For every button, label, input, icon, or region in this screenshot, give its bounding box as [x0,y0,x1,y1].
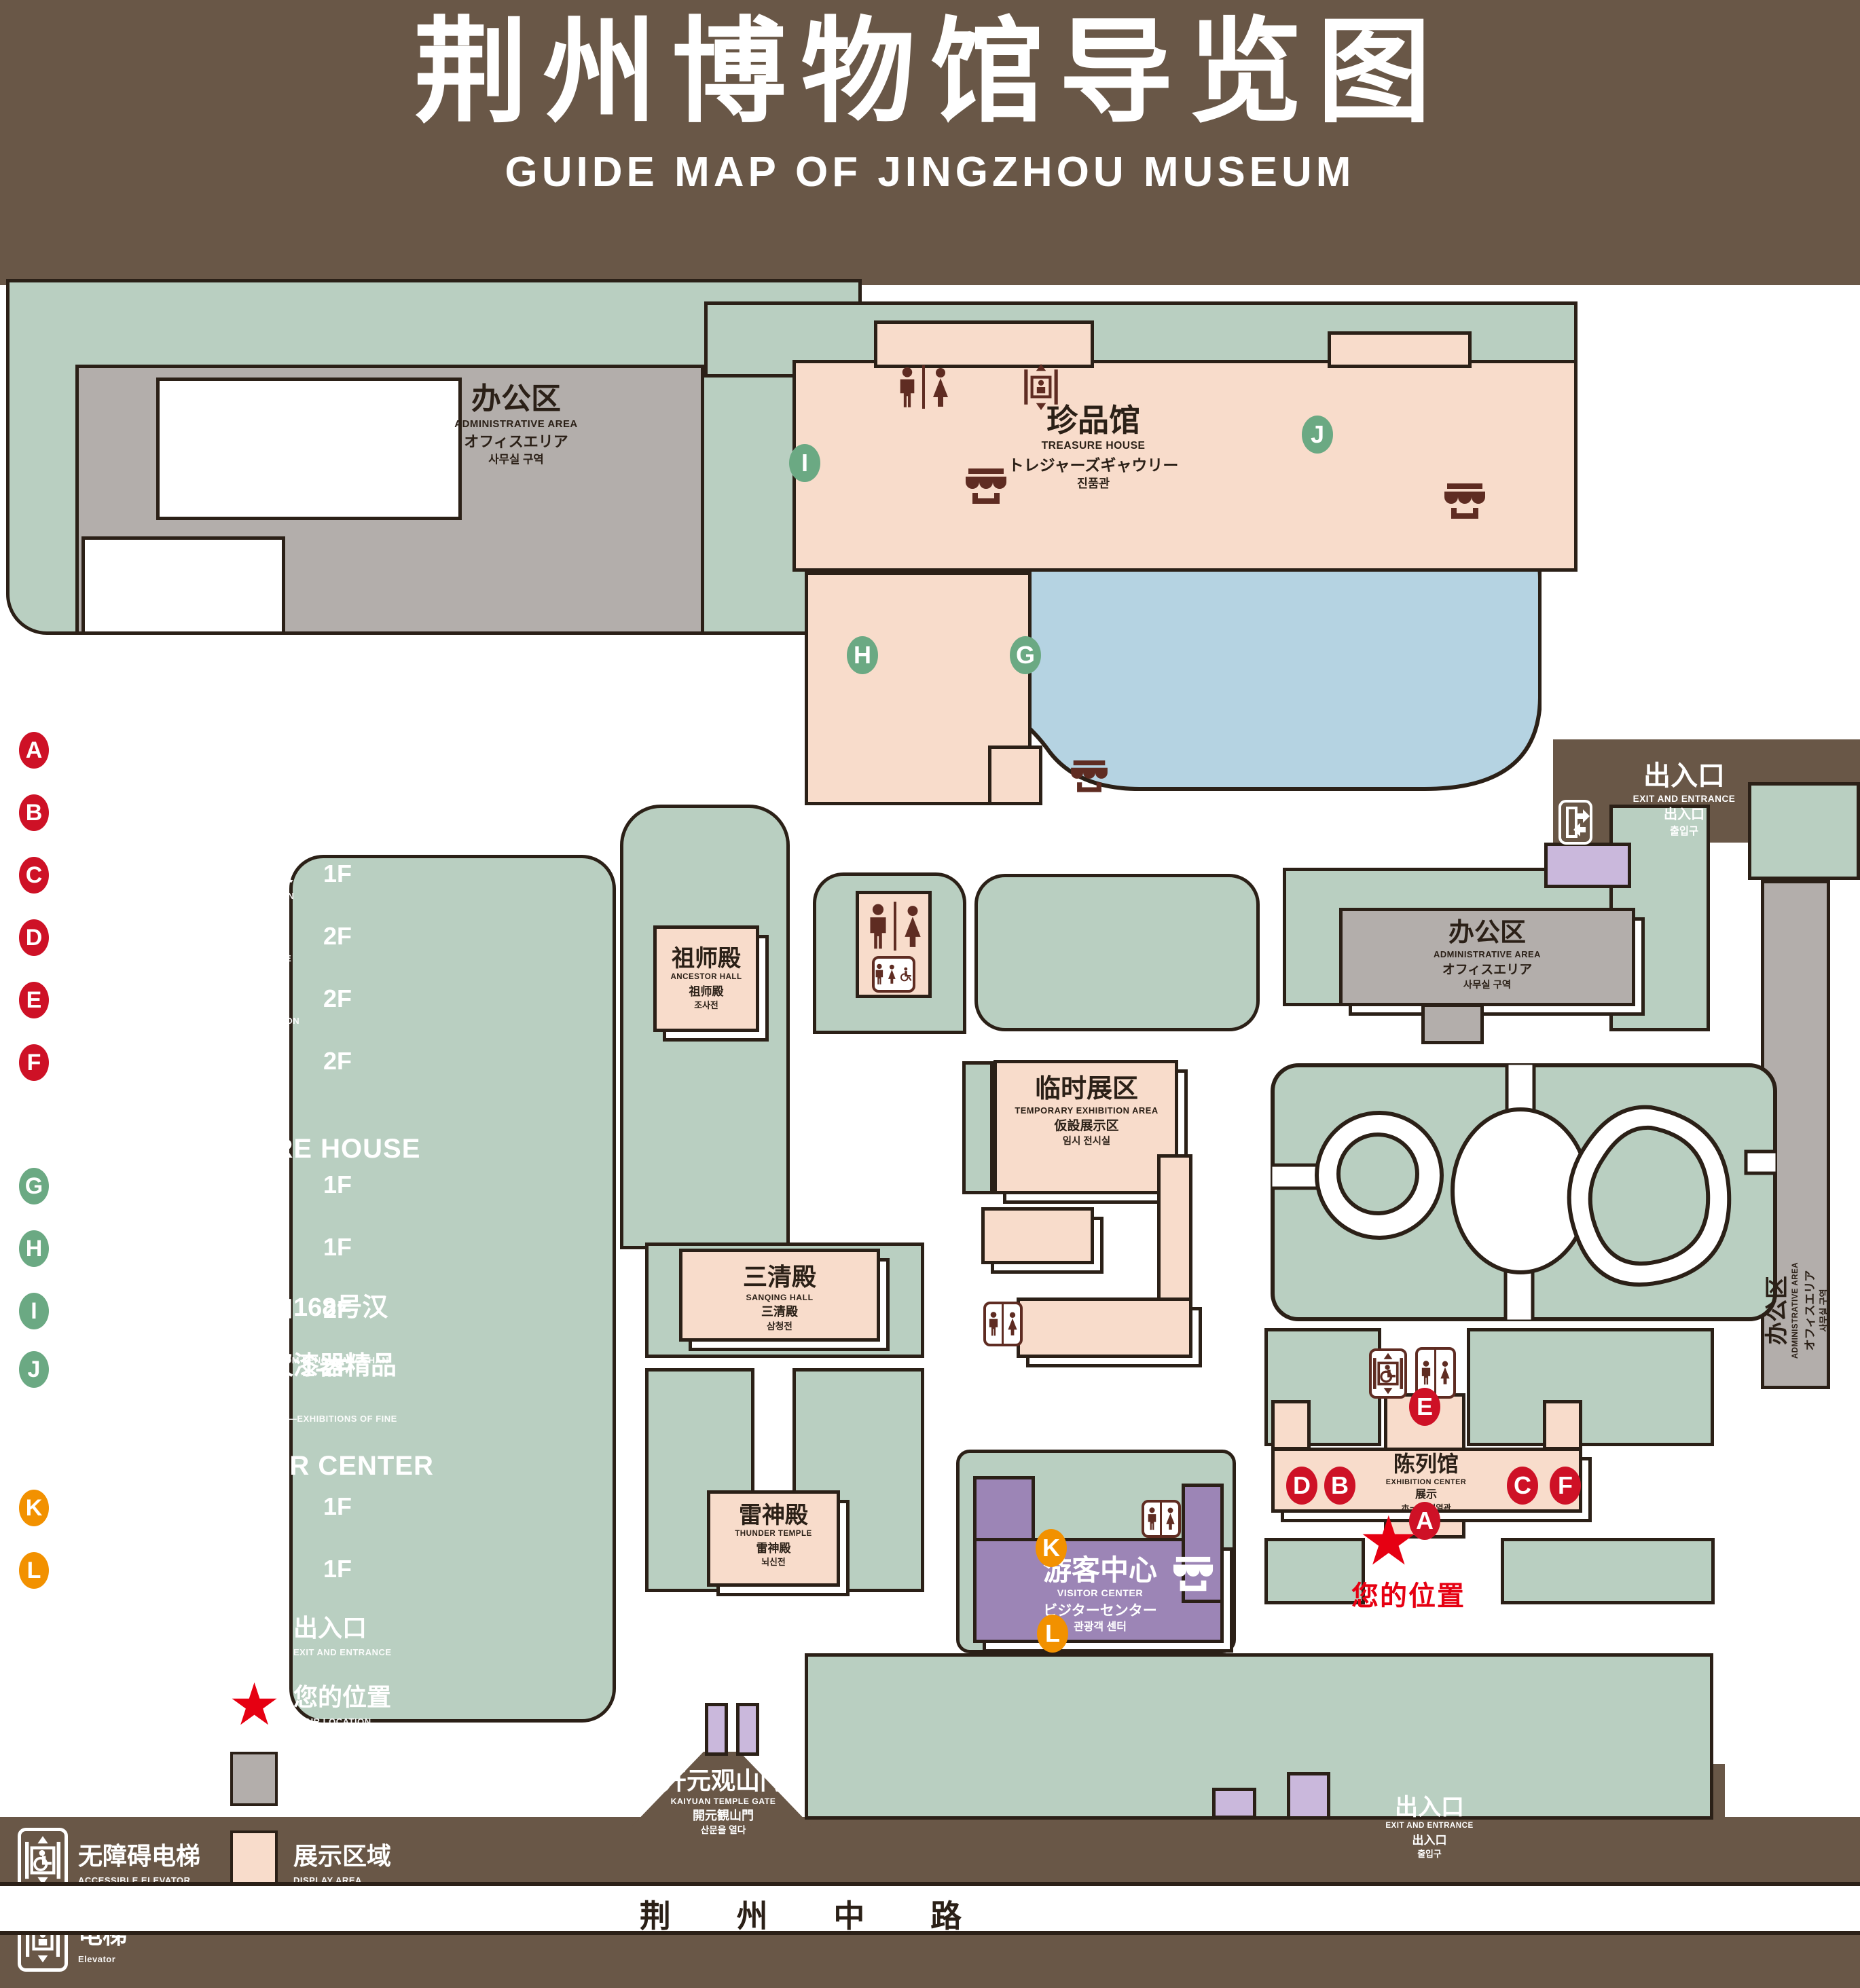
legend-accessible-label: 无障碍电梯 ACCESSIBLE ELEVATOR [78,1843,200,1885]
thunder-ja: 雷神殿 [712,1542,835,1556]
road-label: 荆 州 中 路 [407,1892,1222,1936]
legend-item-d: D 荆州出土瓷器展 JINGZHOU UNEARTHED PORCELAIN E… [19,921,399,963]
badge-e: E [19,982,49,1018]
legend-item-g: G 放映厅 PROJECTION HALL 1F [19,1169,399,1212]
admin-side-ja: オフィスエリア [1804,1175,1817,1446]
elevator-icon [1022,364,1060,410]
exit-top-en: EXIT AND ENTRANCE [1582,794,1786,805]
exit-top-ja: 出入口 [1582,807,1786,824]
exit-bottom-pad-right [1287,1772,1330,1820]
map-badge-g: G [1010,636,1041,674]
treasure-lower-tab [988,745,1042,805]
gate-pillar-left [705,1703,728,1756]
legend-sec3-zh: 游客中心 [19,1429,177,1486]
building-label-temporary: 临时展区 TEMPORARY EXHIBITION AREA 仮設展示区 임시 … [995,1074,1178,1147]
location-star-icon: ★ [1358,1507,1419,1575]
store-icon [1443,483,1487,523]
gate-en: KAIYUAN TEMPLE GATE [615,1797,832,1806]
store-icon [1070,760,1109,796]
page-title: 荆州博物馆导览图 [0,12,1860,132]
item-g-floor: 1F [323,1171,352,1199]
exit-bottom-pad-left [1212,1788,1256,1819]
building-label-admin-right: 办公区 ADMINISTRATIVE AREA オフィスエリア 사무실 구역 [1355,918,1620,991]
badge-i: I [19,1293,49,1329]
family-restroom-icon [18,1749,68,1811]
thunder-zh: 雷神殿 [712,1502,835,1529]
map-badge-d: D [1286,1467,1317,1505]
family-zh: 家庭卫生间 [78,1764,200,1791]
map-badge-f: F [1550,1467,1581,1505]
map-badge-h: H [847,636,878,674]
legend-sec1-en: EXHIBITION CENTER [158,697,443,728]
admin-right-tab [1421,1004,1484,1044]
admin-top-zh: 办公区 [380,382,652,417]
item-b-floor: 1F [323,797,352,826]
treasure-tab-right [1328,331,1472,368]
restroom-icon [898,365,951,409]
map-badge-k: K [1036,1529,1067,1567]
exit-bottom-ja: 出入口 [1328,1834,1531,1847]
park-bottom-middle [805,1653,1713,1820]
store-icon [19,1610,65,1653]
display-area-swatch [230,1830,278,1885]
accessible-zh: 无障碍电梯 [78,1843,200,1870]
legend-family-label: 家庭卫生间 FAMILY RESTROOMS [78,1764,200,1807]
building-label-thunder: 雷神殿 THUNDER TEMPLE 雷神殿 뇌신전 [712,1502,835,1567]
legend-item-e: E 荆州出土简牍展 JINGZHOU EXCAVATED BAMBOO SLIP… [19,983,399,1026]
legend-item-j: J 丹漆神韵——楚秦汉漆器精品展 ROMANTIC CHARM OF THE C… [19,1352,399,1434]
item-g-en: PROJECTION HALL [61,1202,399,1212]
exit-top-label: 出入口 EXIT AND ENTRANCE 出入口 출입구 [1582,760,1786,838]
office-zh: 办公区域 [293,1764,391,1791]
ancestor-ko: 조사전 [645,1000,767,1010]
badge-j: J [19,1351,49,1388]
exit-bottom-en: EXIT AND ENTRANCE [1328,1822,1531,1831]
exit-bottom-label: 出入口 EXIT AND ENTRANCE 出入口 출입구 [1328,1794,1531,1859]
legend-store-label: 文创商店 STORE [78,1615,176,1657]
item-h-en: INTERACTIVE EXPERIENCE HALL [61,1264,399,1274]
item-a-en: THE PHOENIX IN FIRE "MURAL PAINTING [61,766,399,776]
map-badge-e: E [1409,1388,1440,1426]
admin-right-ko: 사무실 구역 [1355,980,1620,991]
map-badge-i: I [789,444,820,482]
legend-section-exhibition-center: 陈列馆 EXHIBITION CENTER [19,676,444,733]
item-k-en: SECURITY [61,1524,399,1534]
legend-section-treasure-house: 珍品馆 TREASURE HOUSE [19,1112,420,1169]
admin-top-ko: 사무실 구역 [380,453,652,466]
legend-item-a: A 《火中的凤凰》壁画 THE PHOENIX IN FIRE "MURAL P… [19,733,399,776]
item-f-floor: 2F [323,1047,352,1075]
legend-sec1-zh: 陈列馆 [19,676,137,733]
restroom-en: RESTROOMS [78,1716,151,1727]
item-k-floor: 1F [323,1492,352,1521]
exit-en: EXIT AND ENTRANCE [293,1647,392,1657]
exhibition-tab-left [1271,1400,1311,1450]
item-h-floor: 1F [323,1233,352,1262]
office-area-swatch [230,1752,278,1806]
legend-location-label: 您的位置 YOUR LOCATION [293,1684,391,1727]
item-b-en: JINGZHOU UNEARTHED BRONZE WARE EXHIBITIO… [61,828,399,839]
exhibition-tab-right [1543,1400,1582,1450]
store-en: STORE [78,1647,176,1657]
item-e-en: JINGZHOU EXCAVATED BAMBOO SLIPS EXHIBITI… [61,1016,399,1026]
legend-section-visitor-center: 游客中心 VISITOR CENTER [19,1429,434,1486]
park-exhibition-br [1501,1538,1715,1604]
ancestor-en: ANCESTOR HALL [645,973,767,982]
visitor-ko: 관광객 센터 [998,1621,1202,1634]
exit-zh: 出入口 [293,1615,392,1642]
display-zh: 展示区域 [293,1843,391,1870]
map-badge-b: B [1324,1467,1355,1505]
item-l-en: CLINIC [61,1586,399,1596]
item-a-floor: 1F [323,735,352,763]
thunder-ko: 뇌신전 [712,1557,835,1567]
item-d-floor: 2F [323,922,352,951]
restroom-icon [983,1302,1023,1346]
admin-top-en: ADMINISTRATIVE AREA [380,418,652,430]
location-en: YOUR LOCATION [293,1716,391,1727]
visitor-en: VISITOR CENTER [998,1588,1202,1600]
treasure-en: TREASURE HOUSE [944,440,1243,452]
temporary-zh: 临时展区 [995,1074,1178,1105]
park-temp-left-strip [962,1061,993,1194]
sanqing-ko: 삼청전 [685,1321,875,1332]
badge-b: B [19,794,49,831]
corridor-horizontal [1017,1297,1192,1358]
treasure-tab-left [874,320,1094,368]
badge-h: H [19,1230,49,1267]
item-d-en: JINGZHOU UNEARTHED PORCELAIN EXHIBITIONE [61,953,399,963]
building-label-visitor: 游客中心 VISITOR CENTER ビジターセンター 관광객 센터 [998,1553,1202,1634]
exit-icon [1558,800,1592,845]
badge-f: F [19,1044,49,1081]
visitor-zh: 游客中心 [998,1553,1202,1587]
store-icon [1172,1556,1214,1596]
park-exhibition-bl [1264,1538,1365,1604]
admin-top-court-bottom [81,536,285,635]
store-icon [964,468,1008,508]
legend-office-label: 办公区域 OFFICE AREA [293,1764,391,1807]
legend-item-f: F 荆州出土玉器展 JINGZHOU UNEARTHED JADE EXHIBI… [19,1046,399,1088]
sanqing-en: SANQING HALL [685,1293,875,1302]
park-temp-upper [974,874,1260,1031]
legend-sec3-en: VISITOR CENTER [197,1451,434,1481]
legend-item-k: K 安全保卫 SECURITY 1F [19,1491,399,1534]
map-badge-l: L [1037,1615,1068,1653]
courtyard-garden [1271,1063,1777,1321]
map-badge-j: J [1302,416,1333,454]
gate-ja: 開元観山門 [615,1809,832,1823]
badge-d: D [19,919,49,956]
gate-pillar-right [736,1703,759,1756]
exit-top-ko: 출입구 [1582,826,1786,838]
item-j-floor: 1-2F [302,1354,352,1382]
gate-ko: 산문을 열다 [615,1825,832,1836]
building-label-gate: 开元观山门 KAIYUAN TEMPLE GATE 開元観山門 산문을 열다 [615,1767,832,1836]
store-zh: 文创商店 [78,1615,176,1642]
family-en: FAMILY RESTROOMS [78,1797,200,1807]
item-c-floor: 1F [323,860,352,888]
admin-side-ko: 사무실 구역 [1819,1175,1829,1446]
admin-right-en: ADMINISTRATIVE AREA [1355,949,1620,959]
your-location-label: 您的位置 [1351,1574,1465,1613]
ancestor-ja: 祖师殿 [645,985,767,999]
exit-bottom-ko: 출입구 [1328,1849,1531,1859]
treasure-zh: 珍品馆 [944,402,1243,439]
exit-bottom-zh: 出入口 [1328,1794,1531,1821]
admin-right-zh: 办公区 [1355,918,1620,949]
item-c-en: JIANGHAN PLAIN PRIMITIVE CULTURE EXHIBIT… [61,891,399,901]
badge-l: L [19,1552,49,1589]
temporary-ko: 임시 전시실 [995,1136,1178,1147]
gate-zh: 开元观山门 [615,1767,832,1795]
elevator-en: Elevator [78,1954,127,1964]
restroom-zh: 卫生间 [78,1684,151,1711]
park-exhibition-tr [1467,1328,1714,1446]
building-label-sanqing: 三清殿 SANQING HALL 三清殿 삼청전 [685,1263,875,1332]
admin-side-en: ADMINISTRATIVE AREA [1791,1175,1801,1446]
legend-sec2-en: TREASURE HOUSE [158,1134,420,1164]
exit-top-gate-pad [1544,843,1631,888]
temporary-en: TEMPORARY EXHIBITION AREA [995,1105,1178,1116]
badge-k: K [19,1490,49,1526]
exit-top-zh: 出入口 [1582,760,1786,792]
map-badge-c: C [1507,1467,1538,1505]
restroom-icon [868,902,924,951]
item-i-floor: 2F [323,1295,352,1324]
legend-item-b: B 荆州出土铜器展 JINGZHOU UNEARTHED BRONZE WARE… [19,796,399,839]
item-f-en: JINGZHOU UNEARTHED JADE EXHIBITION [61,1078,399,1088]
visitor-ja: ビジターセンター [998,1603,1202,1620]
family-restroom-icon [872,956,915,993]
legend-sec2-zh: 珍品馆 [19,1112,137,1169]
legend-item-c: C 江汉平原原始文化展 JIANGHAN PLAIN PRIMITIVE CUL… [19,858,399,901]
temporary-ja: 仮設展示区 [995,1119,1178,1134]
item-l-floor: 1F [323,1555,352,1583]
location-star-icon: ★ [228,1676,280,1734]
building-label-ancestor: 祖师殿 ANCESTOR HALL 祖师殿 조사전 [645,945,767,1010]
page-subtitle: GUIDE MAP OF JINGZHOU MUSEUM [0,148,1860,196]
exhibition-zh: 陈列馆 [1324,1452,1528,1477]
badge-a: A [19,732,49,769]
office-en: OFFICE AREA [293,1797,391,1807]
sanqing-ja: 三清殿 [685,1305,875,1319]
building-label-admin-top: 办公区 ADMINISTRATIVE AREA オフィスエリア 사무실 구역 [380,382,652,466]
building-label-admin-side: 办公区 ADMINISTRATIVE AREA オフィスエリア 사무실 구역 [1764,1175,1829,1446]
restroom-icon [1142,1500,1181,1538]
exit-icon [230,1605,272,1661]
store-building [981,1207,1094,1264]
ancestor-zh: 祖师殿 [645,945,767,972]
admin-top-ja: オフィスエリア [380,433,652,451]
restroom-icon [18,1669,68,1734]
accessible-elevator-icon [1369,1348,1407,1399]
legend-exit-label: 出入口 EXIT AND ENTRANCE [293,1615,392,1657]
legend-item-h: H 互动体验厅 INTERACTIVE EXPERIENCE HALL 1F [19,1232,399,1274]
admin-side-zh: 办公区 [1764,1175,1791,1446]
legend-item-l: L 医疗点 CLINIC 1F [19,1553,399,1596]
location-zh: 您的位置 [293,1684,391,1711]
legend-display-label: 展示区域 DISPLAY AREA [293,1843,391,1885]
exhibition-ja: 展示 [1324,1489,1528,1502]
badge-g: G [19,1168,49,1204]
legend-restroom-label: 卫生间 RESTROOMS [78,1684,151,1727]
thunder-en: THUNDER TEMPLE [712,1530,835,1539]
sanqing-zh: 三清殿 [685,1263,875,1291]
badge-c: C [19,857,49,894]
item-e-floor: 2F [323,984,352,1013]
admin-right-ja: オフィスエリア [1355,963,1620,978]
